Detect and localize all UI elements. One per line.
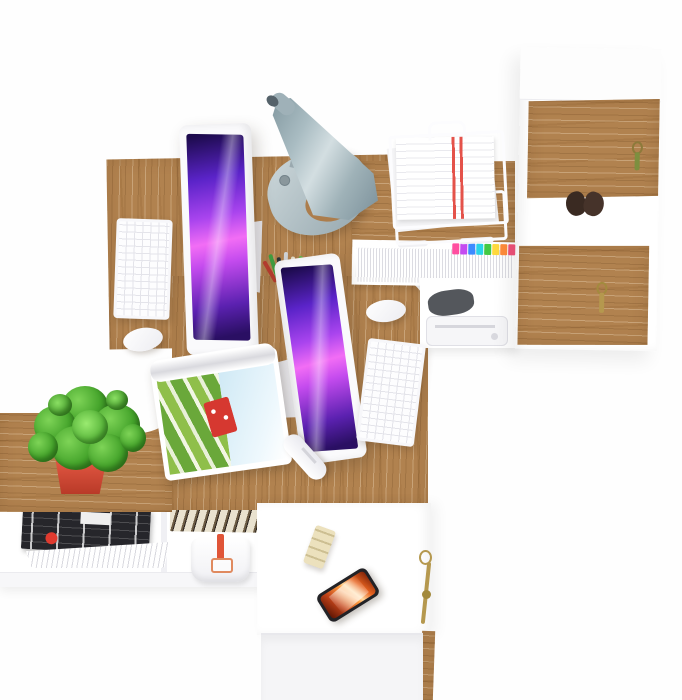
capsule-bottle: [283, 430, 333, 486]
plant-foliage: [28, 380, 150, 480]
lunch-bag: [191, 538, 250, 582]
printer-slot: [435, 325, 495, 328]
tray-upper-frame: [388, 130, 509, 230]
bag-strap: [217, 534, 224, 560]
leaf: [28, 432, 58, 462]
desk-lamp: [252, 98, 384, 240]
leaf: [120, 424, 146, 452]
magazine-title-block: [80, 512, 111, 526]
glove-right: [581, 189, 608, 218]
low-shelf: [0, 502, 266, 586]
bottle-body: [280, 430, 331, 484]
bottom-desk: [257, 503, 433, 700]
key-gold-cabinet-tassel: [599, 293, 604, 313]
keyboard-workstation1: [113, 218, 172, 320]
potted-plant: [28, 380, 150, 498]
open-magazine: [149, 347, 292, 482]
leaf: [72, 410, 108, 444]
key-green-tassel: [635, 152, 640, 170]
imac1-screen-glare: [186, 134, 250, 341]
tray-handle: [428, 120, 467, 141]
magazine-red-dot: [45, 532, 58, 545]
leaf: [106, 390, 128, 410]
bottom-desk-drawer: [261, 633, 423, 700]
imac1-screen: [186, 134, 250, 341]
dark-pouch: [426, 287, 475, 318]
cabinet-door-upper: [527, 99, 660, 198]
brass-key: [417, 550, 435, 630]
cabinet-door-lower: [517, 246, 649, 345]
leaf: [48, 394, 72, 416]
bag-buckle: [211, 558, 233, 573]
tall-cabinet: [515, 47, 661, 351]
workspace-scene: [0, 0, 682, 700]
under-desk-shelf: [420, 278, 518, 348]
printer: [426, 316, 508, 346]
color-swatch: [508, 244, 515, 255]
imac-workstation1: [179, 123, 271, 358]
printer-button: [491, 333, 498, 340]
cabinet-top-face: [520, 47, 662, 102]
gloves: [566, 190, 606, 217]
lamp-screw: [278, 174, 292, 188]
paper-tray: [382, 124, 512, 252]
brass-key-knot: [422, 590, 431, 599]
